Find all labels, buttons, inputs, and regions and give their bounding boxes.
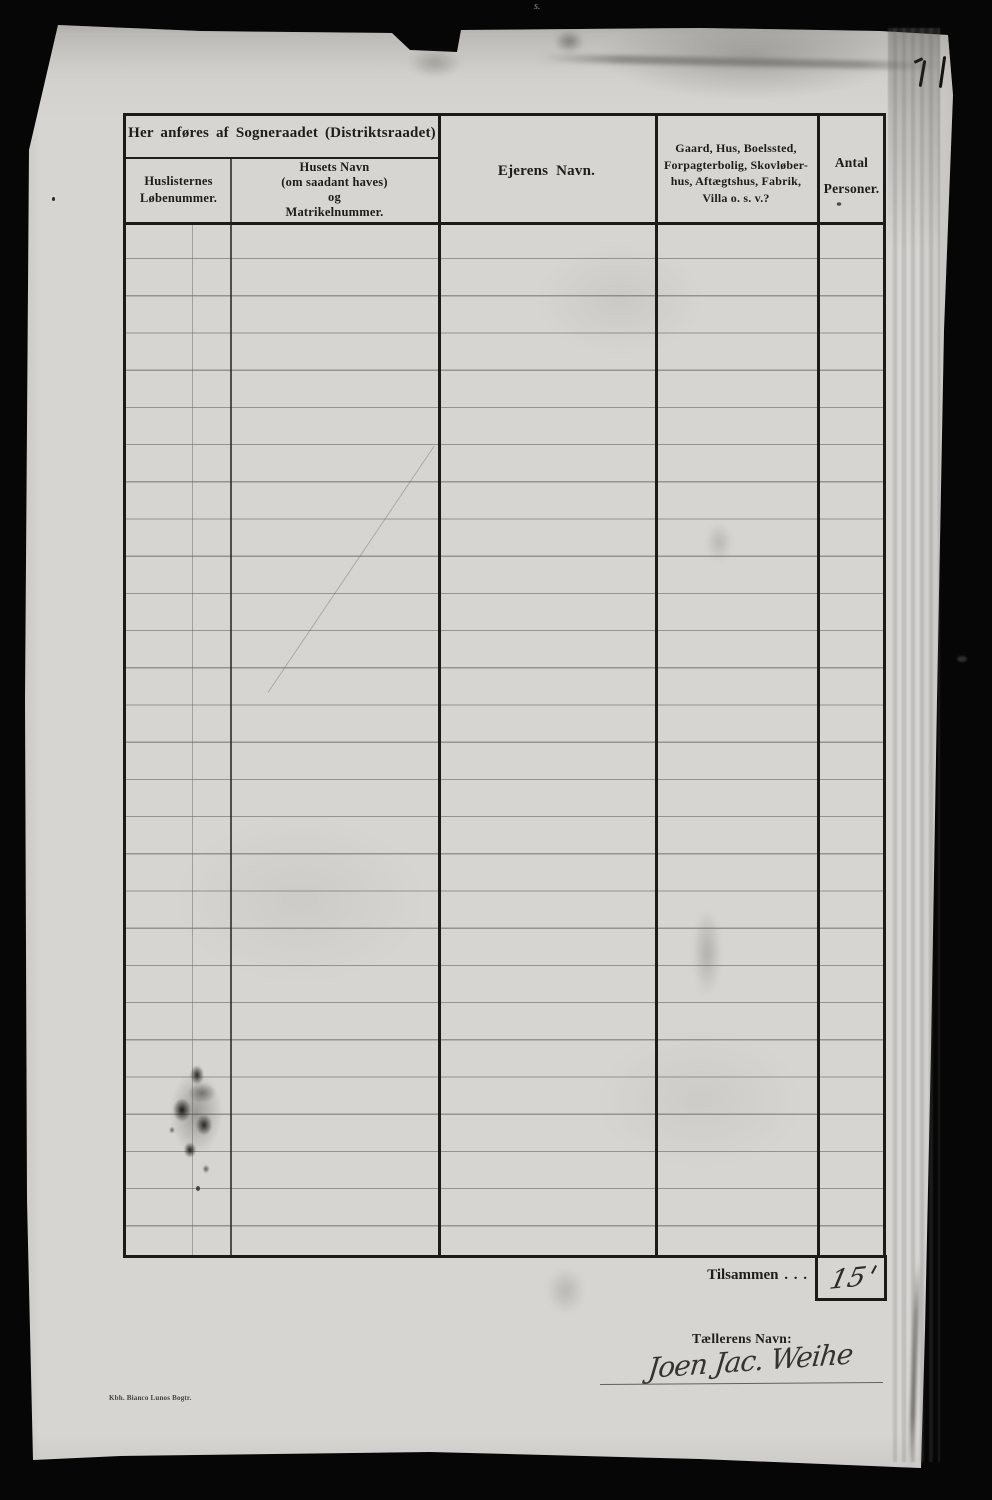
header-line: Villa o. s. v.? xyxy=(655,190,817,207)
column-header-gaard-hus: Gaard, Hus, Boelssted, Forpagterbolig, S… xyxy=(655,140,817,206)
header-line: Huslisternes xyxy=(126,173,231,190)
stray-pen-mark: s. xyxy=(534,1,540,12)
column-header-ejerens-navn: Ejerens Navn. xyxy=(438,163,655,180)
dirt-speck xyxy=(52,197,55,201)
tilsammen-total-box: 15 xyxy=(815,1255,887,1301)
ink-blot-droplet xyxy=(196,1186,200,1191)
header-bottom-border xyxy=(126,222,883,225)
smudge-stain xyxy=(538,1258,593,1323)
dirt-speck xyxy=(957,656,967,662)
column-divider-line xyxy=(655,116,658,1255)
header-line: Forpagterbolig, Skovløber- xyxy=(655,157,817,174)
footnote-asterisk: * xyxy=(817,200,861,212)
header-line: Antal xyxy=(817,150,886,176)
column-header-antal-personer: Antal Personer. xyxy=(817,150,886,202)
column-divider-line xyxy=(438,116,441,1255)
header-line: hus, Aftægtshus, Fabrik, xyxy=(655,173,817,190)
torn-edge-shadow xyxy=(398,48,472,90)
printer-imprint: Kbh. Bianco Lunos Bogtr. xyxy=(109,1394,192,1402)
tilsammen-label: Tilsammen . . . xyxy=(655,1267,807,1284)
header-line: Personer. xyxy=(817,176,886,202)
column-header-husets-navn: Husets Navn (om saadant haves) og Matrik… xyxy=(231,160,438,220)
group-header-sogneraadet: Her anføres af Sogneraadet (Distriktsraa… xyxy=(126,125,438,142)
header-line: Løbenummer. xyxy=(126,190,231,207)
top-edge-stain xyxy=(548,27,590,59)
header-line: Matrikelnummer. xyxy=(231,205,438,220)
column-header-huslisternes: Huslisternes Løbenummer. xyxy=(126,173,231,207)
header-line: Husets Navn xyxy=(231,160,438,175)
ink-blot-stain xyxy=(152,1035,242,1180)
group-header-underline xyxy=(126,157,438,159)
column-divider-line xyxy=(817,116,820,1255)
header-line: Gaard, Hus, Boelssted, xyxy=(655,140,817,157)
right-edge-shadow xyxy=(888,28,940,1462)
header-line: og xyxy=(231,190,438,205)
header-line: (om saadant haves) xyxy=(231,175,438,190)
tilsammen-handwritten-total: 15 xyxy=(813,1255,890,1302)
